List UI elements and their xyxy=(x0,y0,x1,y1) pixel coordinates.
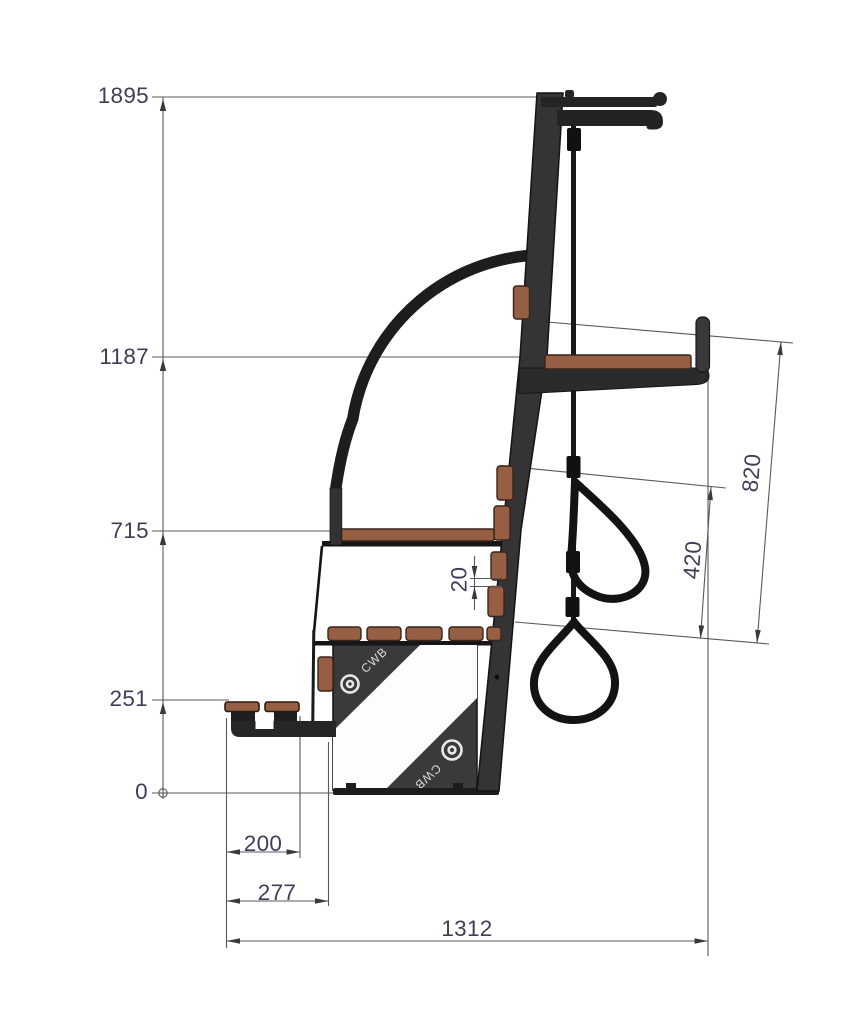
svg-text:0: 0 xyxy=(135,779,148,804)
svg-text:20: 20 xyxy=(447,567,472,593)
svg-text:251: 251 xyxy=(110,686,148,711)
svg-text:1187: 1187 xyxy=(99,344,149,369)
svg-text:420: 420 xyxy=(679,540,707,580)
svg-text:277: 277 xyxy=(258,880,296,905)
svg-text:820: 820 xyxy=(737,453,765,493)
svg-text:1312: 1312 xyxy=(441,916,492,941)
svg-text:200: 200 xyxy=(244,831,282,856)
svg-text:715: 715 xyxy=(111,518,149,543)
svg-text:1895: 1895 xyxy=(98,83,149,108)
